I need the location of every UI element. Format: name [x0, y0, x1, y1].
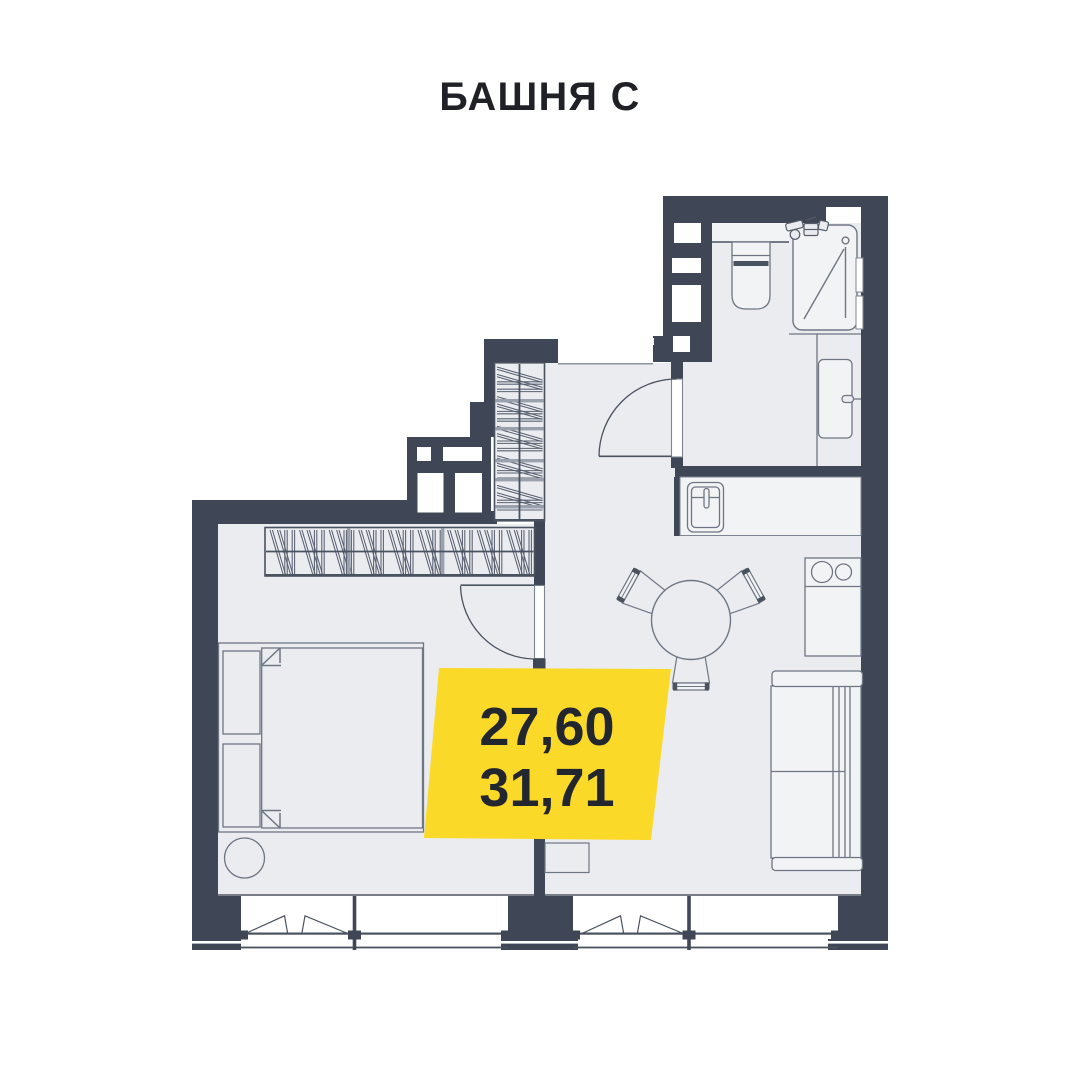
svg-text:27,60: 27,60 — [479, 697, 614, 757]
svg-text:БАШНЯ С: БАШНЯ С — [439, 75, 640, 119]
svg-text:31,71: 31,71 — [479, 758, 614, 818]
